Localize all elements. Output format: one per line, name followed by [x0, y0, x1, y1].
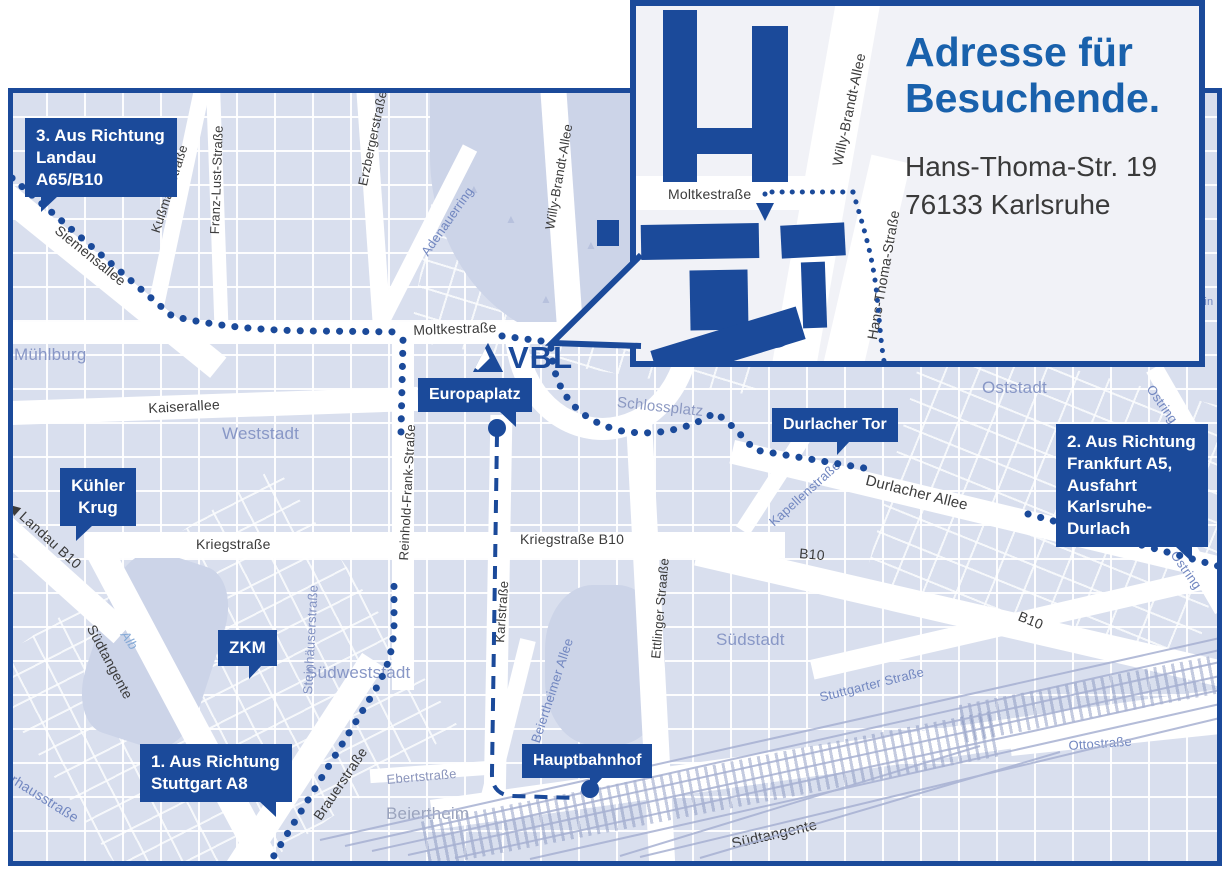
road-kriegstrasse [85, 532, 785, 558]
street-label-b10-mid: B10 [799, 545, 826, 563]
inset-building [801, 262, 827, 329]
district-label-beiertheim: Beiertheim [386, 804, 469, 824]
vbl-triangle-icon [472, 342, 504, 374]
vbl-logo-text: VBL [508, 340, 573, 376]
inset-building [697, 128, 753, 154]
district-label-weststadt: Weststadt [222, 424, 299, 444]
district-label-suedstadt: Südstadt [716, 630, 785, 650]
park-building [597, 220, 619, 246]
visitor-address-inset: Moltkestraße Willy-Brandt-Allee Hans-Tho… [630, 0, 1205, 367]
tree-icon: ▲ [505, 212, 517, 226]
inset-building [663, 10, 697, 182]
inset-building [641, 223, 760, 260]
callout-kuehler-krug[interactable]: Kühler Krug [60, 468, 136, 526]
district-label-muehlburg: Mühlburg [14, 345, 86, 365]
inset-street-label-moltkestrasse: Moltkestraße [668, 186, 751, 202]
callout-from-landau[interactable]: 3. Aus Richtung Landau A65/B10 [25, 118, 177, 197]
inset-address: Hans-Thoma-Str. 19 76133 Karlsruhe [905, 148, 1157, 224]
callout-from-stuttgart[interactable]: 1. Aus Richtung Stuttgart A8 [140, 744, 292, 802]
vbl-direction-map: ▲ ▲ ▲ ▲ ▲ Siemensallee Kußmaulstraße Fra… [0, 0, 1230, 874]
tree-icon: ▲ [540, 292, 552, 306]
inset-building [752, 26, 788, 182]
district-label-oststadt: Oststadt [982, 378, 1047, 398]
callout-hauptbahnhof[interactable]: Hauptbahnhof [522, 744, 652, 778]
callout-zkm[interactable]: ZKM [218, 630, 277, 666]
street-label-moltkestrasse: Moltkestraße [413, 319, 497, 338]
callout-europaplatz[interactable]: Europaplatz [418, 378, 532, 412]
callout-from-frankfurt[interactable]: 2. Aus Richtung Frankfurt A5, Ausfahrt K… [1056, 424, 1208, 547]
tree-icon: ▲ [585, 238, 597, 252]
district-label-suedweststadt: Südweststadt [306, 663, 410, 683]
callout-durlacher-tor[interactable]: Durlacher Tor [772, 408, 898, 442]
vbl-logo: VBL [472, 340, 573, 376]
inset-building [689, 269, 748, 330]
inset-title: Adresse für Besuchende. [905, 30, 1195, 122]
street-label-kriegstrasse: Kriegstraße [196, 536, 271, 552]
inset-building [780, 222, 846, 258]
street-label-kriegstrasse-b10: Kriegstraße B10 [520, 531, 624, 547]
